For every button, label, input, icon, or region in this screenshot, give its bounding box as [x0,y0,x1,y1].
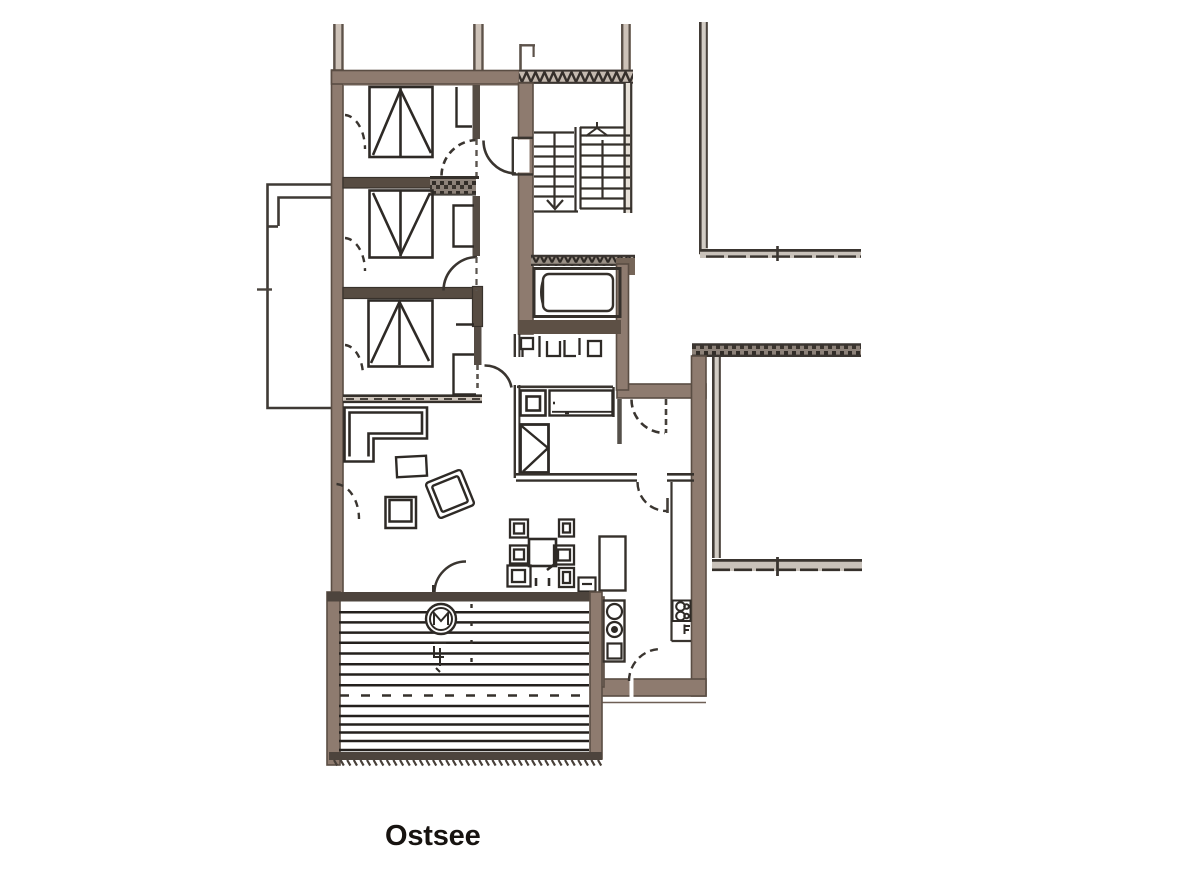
svg-text:Ostsee: Ostsee [385,820,481,852]
